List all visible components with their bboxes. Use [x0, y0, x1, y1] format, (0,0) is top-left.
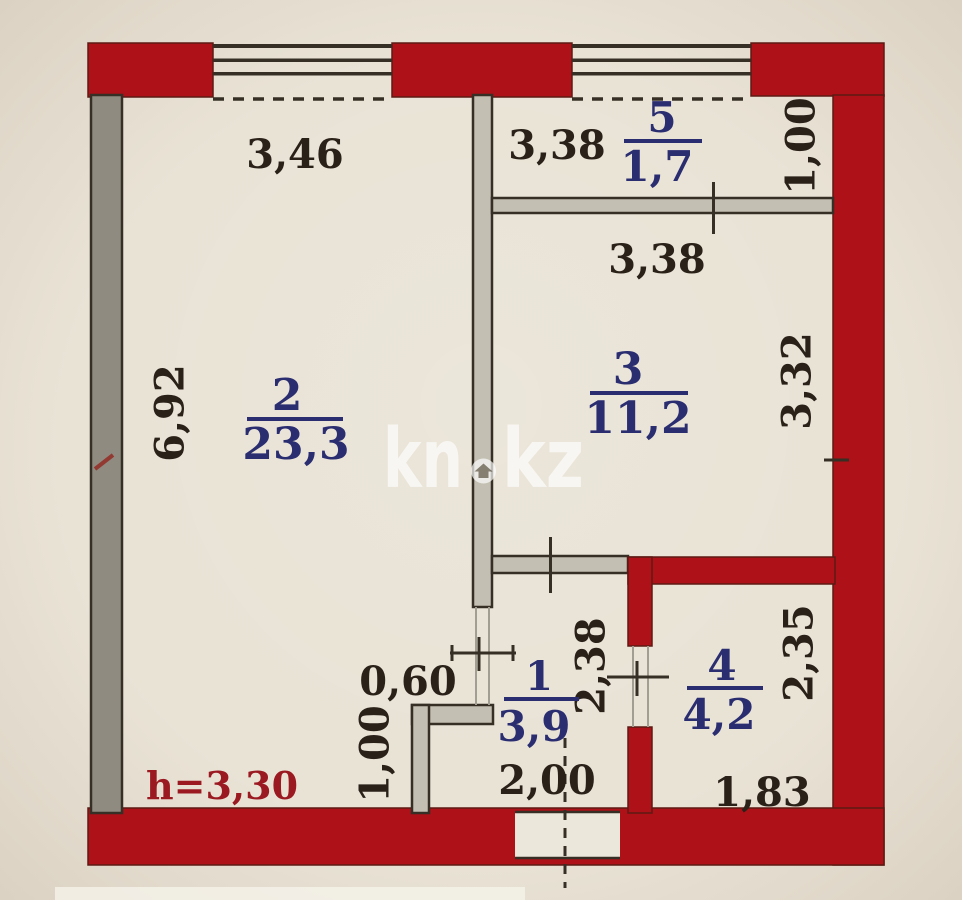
dim-room4-width: 1,83 [713, 769, 810, 816]
window-left-line3 [213, 72, 392, 76]
wall-top-block-middle [392, 43, 572, 97]
ceiling-height-note: h=3,30 [146, 763, 298, 808]
dim-room3-depth: 3,32 [774, 332, 821, 429]
window-right [572, 44, 751, 76]
dim-room5-width: 3,38 [508, 122, 605, 169]
wall-top-block-left [88, 43, 213, 97]
wall-left-gray [91, 95, 122, 813]
floorplan-photo: 3,46 3,38 1,00 3,38 3,32 6,92 0,60 2,38 … [0, 0, 962, 900]
watermark-kz: kz [502, 412, 584, 507]
room3-area: 11,2 [584, 393, 691, 444]
room3-label: 3 11,2 [584, 344, 691, 444]
floor-plan: 3,46 3,38 1,00 3,38 3,32 6,92 0,60 2,38 … [0, 0, 962, 900]
wall-room2-divider [473, 95, 492, 607]
room5-number: 5 [647, 93, 676, 142]
wall-niche-vertical [412, 705, 429, 813]
dim-room4-depth: 2,35 [776, 604, 823, 701]
dim-hall-width: 2,00 [498, 757, 595, 804]
wall-bottom [88, 808, 884, 865]
room5-label: 5 1,7 [620, 93, 702, 191]
inner-walls [412, 95, 833, 813]
window-right-line3 [572, 72, 751, 76]
watermark-kn: kn [383, 412, 463, 507]
window-right-line1 [572, 44, 751, 48]
wall-room3-hall [492, 556, 628, 573]
dim-niche-width: 0,60 [359, 658, 456, 705]
window-left-line2 [213, 59, 392, 63]
dim-room5-depth: 1,00 [778, 97, 825, 194]
wall-top-right-corner [751, 43, 884, 96]
room4-area: 4,2 [682, 690, 755, 739]
room4-label: 4 4,2 [682, 641, 763, 739]
room2-number: 2 [272, 370, 303, 421]
entry-opening [515, 813, 620, 859]
room4-wall-top [628, 557, 835, 584]
dim-niche-depth: 1,00 [352, 705, 399, 802]
window-left [213, 44, 392, 76]
dim-room2-depth: 6,92 [147, 364, 194, 461]
room5-area: 1,7 [620, 142, 693, 191]
room4-number: 4 [707, 641, 736, 690]
wall-right [833, 95, 884, 865]
dim-room3-width: 3,38 [608, 236, 705, 283]
room1-area: 3,9 [497, 702, 570, 751]
photo-edge-highlight [55, 887, 525, 900]
room4-wall-left-upper [628, 557, 652, 646]
room4-wall-left-lower [628, 727, 652, 813]
window-right-line2 [572, 59, 751, 63]
window-left-line1 [213, 44, 392, 48]
room2-label: 2 23,3 [242, 370, 349, 470]
dim-room2-width: 3,46 [246, 131, 343, 178]
room3-number: 3 [613, 344, 644, 395]
room1-number: 1 [525, 653, 553, 700]
wall-room5-room3 [492, 198, 833, 213]
room2-area: 23,3 [242, 419, 349, 470]
